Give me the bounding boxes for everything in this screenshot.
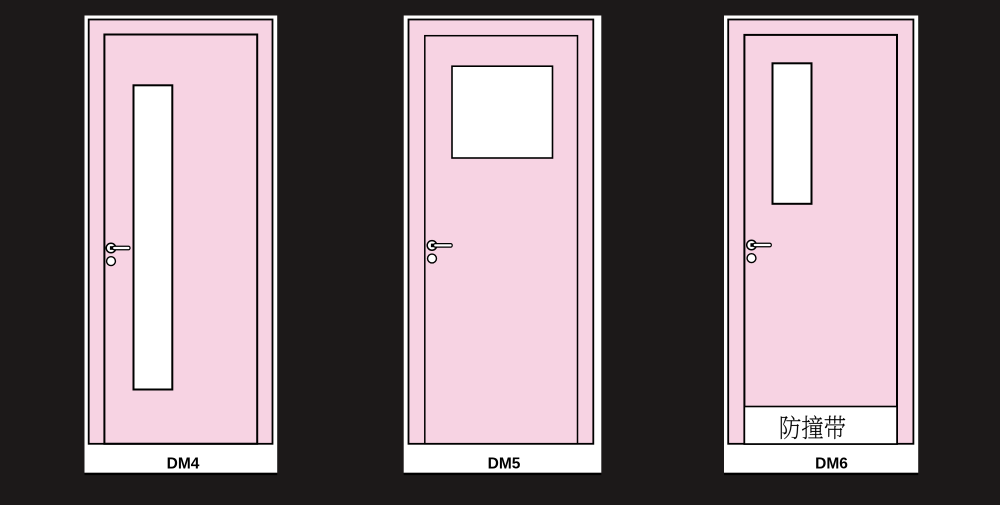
svg-text:DM4: DM4 — [167, 456, 200, 473]
svg-text:DM6: DM6 — [815, 456, 848, 473]
svg-text:DM5: DM5 — [488, 456, 521, 473]
